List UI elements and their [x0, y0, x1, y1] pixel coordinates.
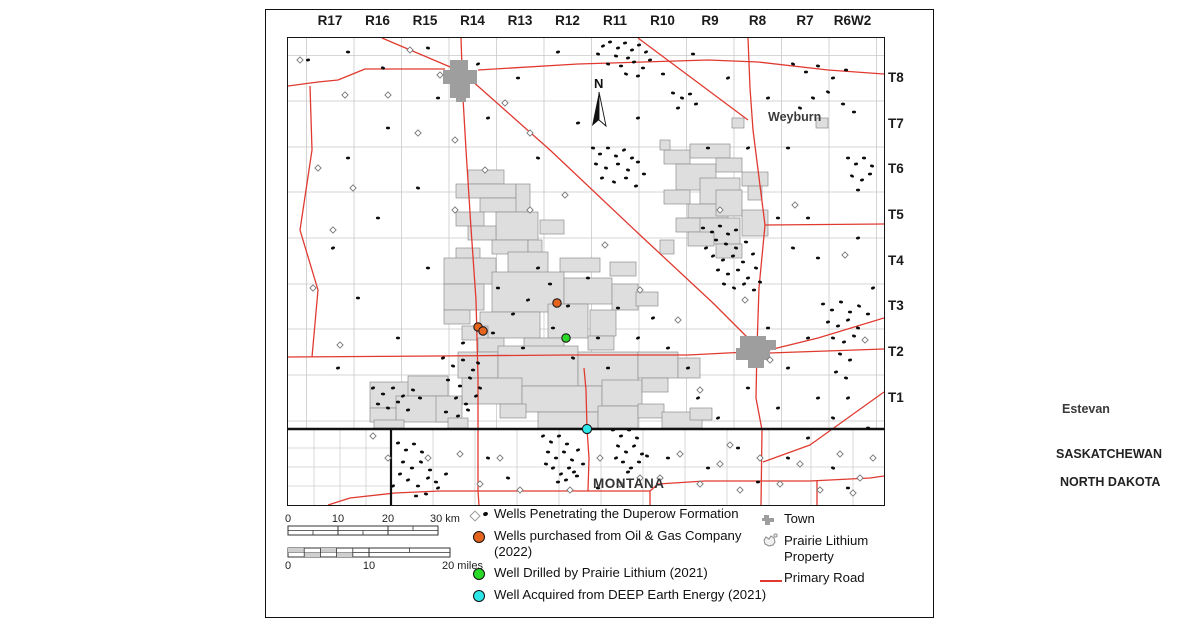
well-diamond — [342, 92, 348, 98]
well-dot — [721, 258, 726, 262]
page: R17R16R15R14R13R12R11R10R9R8R7R6W2 T8T7T… — [0, 0, 1200, 627]
well-dot — [551, 466, 556, 470]
township-label-t6: T6 — [888, 161, 904, 177]
well-diamond — [370, 433, 376, 439]
well-dot — [852, 111, 856, 114]
well-dot — [636, 116, 641, 120]
legend-well-label: Well Drilled by Prairie Lithium (2021) — [494, 565, 708, 581]
north-arrow-glyph — [586, 78, 622, 138]
well-dot — [626, 470, 631, 474]
well-dot — [831, 416, 836, 420]
region-label-saskatchewan: SASKATCHEWAN — [1056, 447, 1162, 461]
legend-feature-label: Primary Road — [784, 570, 865, 586]
property-cell — [742, 172, 768, 186]
well-diamond — [330, 227, 336, 233]
legend-well-item: Wells purchased from Oil & Gas Company (… — [470, 528, 770, 559]
property-cell — [690, 144, 730, 158]
well-dot — [776, 216, 780, 219]
well-dot — [346, 50, 350, 53]
well-dot — [616, 162, 620, 165]
well-diamond — [457, 451, 463, 457]
well-diamond — [842, 252, 848, 258]
town-icon — [760, 511, 784, 527]
property-cell — [664, 150, 690, 164]
property-cell — [636, 292, 658, 306]
primary-road — [765, 224, 884, 225]
well-dot — [398, 472, 403, 476]
well-diamond — [717, 461, 723, 467]
well-dot — [541, 434, 546, 438]
well-dot — [640, 452, 645, 456]
township-axis: T8T7T6T5T4T3T2T1 — [888, 38, 928, 505]
well-dot — [336, 366, 341, 370]
well-dot — [594, 162, 599, 166]
property-cell — [716, 244, 742, 258]
well-dot — [575, 475, 579, 478]
well-dot — [641, 67, 645, 70]
well-dot — [632, 60, 637, 63]
well-dot — [356, 296, 360, 299]
well-dot — [839, 300, 844, 304]
well-dot — [632, 444, 637, 448]
scale-label: 10 — [332, 513, 344, 525]
well-dot — [536, 156, 541, 160]
well-dot — [661, 73, 665, 76]
deep-earth-energy-well — [582, 424, 591, 433]
well-dot — [776, 406, 781, 410]
well-dot — [846, 318, 851, 322]
property-cell — [500, 404, 526, 418]
well-diamond — [517, 487, 523, 493]
well-dot — [868, 172, 873, 175]
scale-label: 0 — [285, 560, 291, 572]
well-diamond — [350, 185, 356, 191]
well-dot — [676, 106, 681, 110]
well-diamond — [297, 57, 303, 63]
property-cell — [612, 284, 638, 310]
scale-label: 10 — [363, 560, 375, 572]
road-line-icon — [760, 580, 782, 583]
well-dot — [451, 364, 456, 368]
property-cell — [462, 378, 522, 404]
well-dot — [614, 154, 619, 158]
property-cell — [496, 212, 538, 240]
township-label-t2: T2 — [888, 344, 904, 360]
well-dot — [726, 272, 730, 275]
well-diamond — [675, 317, 681, 323]
township-label-t3: T3 — [888, 298, 904, 314]
property-cell — [444, 258, 496, 284]
well-dot — [598, 152, 603, 155]
property-cell — [590, 310, 616, 336]
well-dot — [701, 227, 705, 230]
well-dot — [614, 456, 619, 460]
well-dot — [420, 450, 425, 454]
green-circle-icon — [473, 568, 485, 580]
property-cell — [598, 406, 638, 428]
well-dot — [416, 186, 421, 190]
well-dot — [544, 462, 549, 466]
well-dot — [744, 240, 749, 243]
well-dot — [688, 92, 693, 95]
legend-wells: Wells Penetrating the Duperow FormationW… — [470, 506, 770, 609]
well-dot — [846, 396, 851, 400]
well-dot — [419, 460, 424, 464]
town-shape-weyburn — [456, 96, 466, 102]
well-dot — [564, 478, 569, 482]
well-dot — [386, 126, 390, 129]
well-dot — [636, 336, 641, 340]
well-dot — [634, 184, 639, 188]
well-dot — [866, 312, 870, 315]
well-dot — [436, 96, 440, 99]
orange-well-icon — [470, 528, 494, 544]
well-diamond — [497, 455, 503, 461]
well-dot — [428, 468, 432, 471]
well-dot — [752, 288, 756, 291]
well-dot — [711, 254, 716, 258]
well-dot — [871, 286, 876, 290]
property-cell — [610, 262, 636, 276]
well-dot — [716, 416, 721, 420]
well-dot — [644, 50, 649, 54]
well-dot — [804, 70, 808, 73]
well-dot — [570, 458, 575, 462]
well-dot — [826, 320, 831, 324]
well-dot — [486, 456, 491, 460]
well-dot — [848, 311, 852, 314]
well-dot — [870, 164, 875, 168]
well-diamond — [677, 451, 683, 457]
well-diamond — [437, 72, 443, 78]
north-arrow-icon: N — [586, 78, 622, 138]
well-diamond — [697, 387, 703, 393]
primary-road — [300, 86, 318, 357]
well-dot — [754, 266, 759, 270]
well-diamond — [562, 192, 568, 198]
well-diamond — [870, 455, 876, 461]
green-well-icon — [470, 565, 494, 581]
well-dot — [816, 256, 820, 259]
cyan-circle-icon — [473, 590, 485, 602]
well-dot — [624, 450, 629, 454]
township-label-t5: T5 — [888, 207, 904, 223]
well-dot — [791, 246, 796, 249]
well-dot — [486, 116, 491, 120]
well-dot — [549, 440, 554, 444]
well-dot — [557, 434, 562, 438]
scale-bars: 0102030 km 01020 miles — [284, 510, 494, 582]
well-dot — [786, 366, 791, 370]
well-dot — [604, 166, 609, 170]
town-shape-estevan — [748, 360, 764, 368]
well-dot — [476, 62, 481, 66]
km-scalebar: 0102030 km — [285, 513, 460, 535]
legend-well-item: Wells Penetrating the Duperow Formation — [470, 506, 770, 522]
property-cell — [664, 190, 690, 204]
well-diamond — [777, 481, 783, 487]
well-dot — [624, 72, 629, 76]
well-diamond — [792, 202, 798, 208]
well-diamond — [452, 137, 458, 143]
well-diamond — [407, 47, 413, 53]
range-axis: R17R16R15R14R13R12R11R10R9R8R7R6W2 — [288, 13, 884, 33]
well-dot — [630, 156, 635, 160]
well-diamond — [597, 455, 603, 461]
legend-well-label: Wells Penetrating the Duperow Formation — [494, 506, 739, 522]
well-dot — [821, 302, 826, 305]
well-dot — [576, 121, 581, 124]
legend-feature-item: Town — [760, 511, 930, 527]
miles-scalebar: 01020 miles — [285, 548, 484, 572]
range-label-r15: R15 — [403, 13, 447, 28]
map-frame: Weyburn Estevan MONTANA SASKATCHEWAN NOR… — [287, 37, 885, 506]
property-cell — [732, 118, 744, 128]
legend-feature-item: Prairie LithiumProperty — [760, 533, 930, 564]
property-cell — [374, 420, 404, 428]
well-dot — [856, 189, 860, 192]
legend-feature-label: Prairie LithiumProperty — [784, 533, 868, 564]
property-cell — [560, 258, 600, 272]
scale-label: 30 km — [430, 513, 460, 525]
well-diamond — [567, 487, 573, 493]
well-dot — [619, 434, 624, 437]
well-dot — [396, 441, 401, 444]
township-label-t4: T4 — [888, 253, 904, 269]
range-label-r12: R12 — [546, 13, 590, 28]
property-cell — [444, 310, 470, 324]
town-shape-estevan — [740, 336, 766, 350]
range-label-r6w2: R6W2 — [831, 13, 875, 28]
well-dot — [850, 174, 855, 178]
well-dot — [806, 336, 811, 340]
legend-well-item: Well Acquired from DEEP Earth Energy (20… — [470, 587, 770, 603]
well-dot — [746, 386, 750, 389]
well-dot — [816, 64, 821, 68]
well-diamond — [742, 297, 748, 303]
well-dot — [414, 494, 418, 497]
well-diamond — [337, 342, 343, 348]
legend-well-label: Well Acquired from DEEP Earth Energy (20… — [494, 587, 766, 603]
property-cell — [548, 304, 588, 338]
well-dot — [404, 448, 409, 451]
property-cell — [522, 386, 602, 412]
well-diamond — [817, 487, 823, 493]
property-icon — [760, 533, 784, 549]
well-dot — [746, 276, 751, 280]
town-label-estevan: Estevan — [1062, 402, 1110, 416]
property-cell — [480, 312, 540, 338]
well-dot — [626, 56, 631, 60]
well-dot — [635, 436, 640, 440]
property-cell — [602, 380, 642, 406]
well-dot — [521, 347, 525, 350]
well-diamond — [797, 461, 803, 467]
property-glyph — [760, 532, 780, 551]
well-dot — [645, 454, 650, 458]
range-label-r11: R11 — [593, 13, 637, 28]
well-dot — [401, 460, 406, 464]
well-dot — [666, 456, 670, 459]
well-dot — [346, 156, 350, 159]
range-label-r10: R10 — [641, 13, 685, 28]
property-cell — [448, 418, 468, 428]
property-cell — [588, 336, 614, 350]
range-label-r17: R17 — [308, 13, 352, 28]
well-diamond — [310, 285, 316, 291]
well-dot — [704, 246, 709, 250]
range-label-r8: R8 — [736, 13, 780, 28]
property-cell — [408, 376, 448, 396]
well-diamond-icon — [469, 510, 480, 521]
primary-road — [288, 69, 445, 86]
well-dot — [831, 466, 836, 470]
township-label-t8: T8 — [888, 70, 904, 86]
well-dot — [811, 96, 816, 100]
town-shape-weyburn — [443, 70, 477, 84]
well-dot — [666, 346, 671, 350]
purchased-well — [553, 299, 561, 307]
property-cell — [516, 184, 530, 212]
well-dot — [636, 160, 641, 163]
well-dot — [671, 91, 676, 95]
well-dot — [826, 90, 831, 94]
range-label-r16: R16 — [356, 13, 400, 28]
well-dot — [831, 76, 836, 79]
well-dot — [680, 96, 685, 100]
well-dot — [786, 456, 791, 460]
legend-feature-item: Primary Road — [760, 570, 930, 586]
well-dot — [806, 216, 810, 219]
well-dot — [621, 461, 625, 464]
well-dot — [741, 260, 746, 263]
well-dot — [436, 486, 441, 490]
well-dot — [830, 309, 834, 312]
well-dot — [424, 492, 429, 496]
well-dot — [841, 103, 845, 106]
well-dot — [834, 370, 839, 374]
well-dot — [742, 282, 747, 286]
property-cell — [638, 352, 678, 378]
well-dot — [860, 178, 865, 182]
well-dot — [396, 336, 400, 339]
well-dot — [516, 76, 520, 79]
property-cell — [716, 158, 742, 172]
well-dot — [848, 358, 853, 362]
well-diamond — [837, 451, 843, 457]
well-dot — [766, 96, 771, 100]
well-dot — [616, 444, 621, 448]
well-dot — [691, 53, 695, 56]
well-dot — [842, 340, 847, 344]
well-dot — [426, 46, 431, 50]
well-dot — [562, 450, 567, 454]
well-dot — [846, 156, 850, 159]
well-diamond — [857, 475, 863, 481]
range-label-r13: R13 — [498, 13, 542, 28]
scale-label: 0 — [285, 513, 291, 525]
well-dot — [852, 334, 857, 338]
well-diamond — [315, 165, 321, 171]
well-dot — [426, 266, 430, 269]
region-label-north-dakota: NORTH DAKOTA — [1060, 475, 1160, 489]
well-dot — [506, 476, 511, 480]
north-arrow-label: N — [594, 76, 603, 91]
well-dot — [601, 44, 606, 48]
well-dot — [856, 236, 861, 240]
town-shape-estevan — [766, 340, 776, 350]
well-dot — [556, 50, 561, 54]
well-dot — [844, 376, 849, 379]
well-dot — [622, 148, 627, 152]
town-shape-weyburn — [450, 84, 470, 98]
well-diamond — [385, 92, 391, 98]
property-cell — [456, 184, 516, 198]
prairie-lithium-property — [370, 118, 828, 428]
well-dot — [619, 65, 623, 68]
property-cell — [688, 232, 714, 246]
well-dot — [623, 41, 628, 44]
range-label-r14: R14 — [451, 13, 495, 28]
well-dot — [722, 282, 727, 286]
well-dot — [838, 352, 843, 356]
property-cell — [690, 408, 712, 420]
well-dot — [751, 252, 756, 256]
well-dot — [572, 470, 577, 474]
well-dot — [736, 269, 740, 272]
well-dot — [444, 472, 449, 476]
well-dot — [626, 168, 631, 172]
well-dot — [846, 486, 850, 489]
primary-road — [478, 60, 884, 74]
legend-features: TownPrairie LithiumPropertyPrimary Road — [760, 511, 930, 592]
well-dot — [576, 448, 581, 452]
well-dot — [624, 177, 628, 180]
well-diamond — [737, 487, 743, 493]
well-dot — [694, 102, 699, 105]
orange-circle-icon — [473, 531, 485, 543]
property-cell — [660, 140, 670, 150]
well-dot — [696, 396, 701, 400]
well-dot — [406, 478, 411, 482]
well-dot — [836, 324, 841, 327]
property-cell — [660, 240, 674, 254]
prairie-lithium-well — [562, 334, 570, 342]
property-cell — [540, 220, 564, 234]
well-dot — [612, 180, 617, 184]
well-dot — [636, 74, 641, 77]
well-dot — [736, 446, 740, 449]
legend-feature-label: Town — [784, 511, 815, 527]
property-cell — [564, 278, 612, 304]
well-dot — [758, 280, 763, 284]
well-diamond — [862, 337, 868, 343]
township-label-t1: T1 — [888, 390, 904, 406]
well-dot — [816, 396, 821, 400]
property-cell — [642, 378, 668, 392]
region-label-montana: MONTANA — [593, 476, 665, 491]
property-cell — [676, 218, 702, 232]
well-dot — [600, 176, 605, 180]
well-dot — [716, 268, 721, 272]
primary-road-icon — [760, 570, 784, 586]
well-dot — [616, 46, 621, 50]
well-dot-icon — [482, 511, 488, 516]
well-diamond — [415, 130, 421, 136]
well-diamond — [425, 455, 431, 461]
well-dot — [806, 436, 811, 440]
town-glyph — [760, 512, 778, 527]
